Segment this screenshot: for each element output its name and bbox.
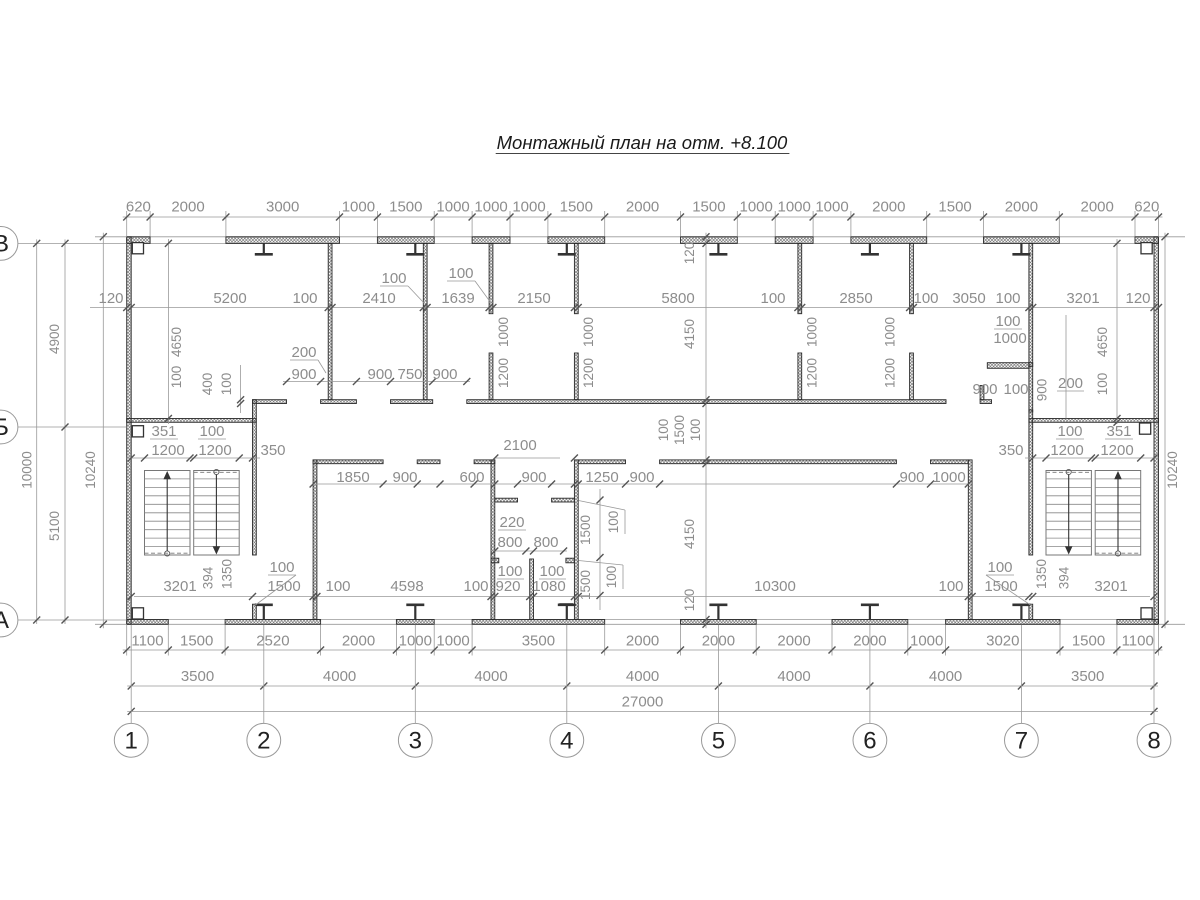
svg-text:3201: 3201 (163, 578, 196, 595)
svg-text:4598: 4598 (390, 578, 423, 595)
svg-text:1100: 1100 (131, 633, 163, 650)
svg-text:1200: 1200 (1050, 442, 1083, 459)
svg-text:394: 394 (201, 566, 216, 589)
svg-text:900: 900 (291, 366, 316, 383)
svg-text:120: 120 (98, 290, 123, 307)
svg-text:900: 900 (432, 366, 457, 383)
svg-text:800: 800 (533, 534, 558, 551)
svg-text:4000: 4000 (474, 668, 507, 685)
svg-text:6: 6 (863, 728, 876, 755)
svg-text:100: 100 (913, 290, 938, 307)
svg-text:4000: 4000 (626, 668, 659, 685)
svg-text:100: 100 (995, 290, 1020, 307)
svg-text:100: 100 (269, 559, 294, 576)
svg-text:1000: 1000 (581, 317, 596, 347)
svg-text:1080: 1080 (532, 578, 565, 595)
svg-text:1: 1 (125, 728, 138, 755)
svg-text:5: 5 (712, 728, 725, 755)
svg-text:1200: 1200 (883, 358, 898, 388)
svg-text:351: 351 (151, 423, 176, 440)
svg-text:4150: 4150 (682, 519, 697, 549)
svg-text:1250: 1250 (585, 469, 618, 486)
svg-text:1000: 1000 (883, 317, 898, 347)
svg-text:1200: 1200 (1100, 442, 1133, 459)
svg-text:750: 750 (397, 366, 422, 383)
svg-text:1000: 1000 (910, 633, 943, 650)
svg-text:5800: 5800 (661, 290, 694, 307)
svg-text:350: 350 (260, 442, 285, 459)
svg-text:100: 100 (463, 578, 488, 595)
svg-text:920: 920 (495, 578, 520, 595)
svg-text:2: 2 (257, 728, 270, 755)
svg-text:400: 400 (200, 373, 215, 396)
svg-text:1500: 1500 (578, 570, 593, 600)
svg-text:1000: 1000 (436, 199, 469, 216)
svg-text:2850: 2850 (839, 290, 872, 307)
svg-text:4900: 4900 (47, 324, 62, 354)
svg-text:2000: 2000 (777, 633, 810, 650)
svg-text:2520: 2520 (256, 633, 289, 650)
svg-text:Монтажный план на отм. +8.100: Монтажный план на отм. +8.100 (497, 132, 788, 153)
svg-text:1200: 1200 (496, 358, 511, 388)
svg-text:4650: 4650 (1095, 327, 1110, 357)
svg-text:100: 100 (938, 578, 963, 595)
svg-text:3050: 3050 (952, 290, 985, 307)
svg-text:1500: 1500 (389, 199, 422, 216)
svg-text:3500: 3500 (1071, 668, 1104, 685)
svg-text:10240: 10240 (1165, 451, 1180, 489)
svg-text:1000: 1000 (474, 199, 507, 216)
svg-text:2000: 2000 (1005, 199, 1038, 216)
svg-text:600: 600 (459, 469, 484, 486)
svg-text:900: 900 (629, 469, 654, 486)
svg-text:200: 200 (291, 344, 316, 361)
svg-text:1000: 1000 (815, 199, 848, 216)
svg-text:Б: Б (0, 414, 9, 441)
svg-text:100: 100 (292, 290, 317, 307)
svg-text:В: В (0, 230, 9, 257)
svg-text:100: 100 (539, 563, 564, 580)
svg-text:1000: 1000 (496, 317, 511, 347)
svg-text:А: А (0, 607, 9, 634)
svg-text:100: 100 (448, 265, 473, 282)
svg-text:1200: 1200 (805, 358, 820, 388)
svg-text:100: 100 (604, 566, 619, 589)
svg-text:800: 800 (497, 534, 522, 551)
svg-text:10000: 10000 (19, 451, 34, 489)
svg-text:100: 100 (169, 366, 184, 389)
svg-text:100: 100 (381, 270, 406, 287)
svg-text:2000: 2000 (626, 633, 659, 650)
svg-text:1000: 1000 (512, 199, 545, 216)
svg-text:900: 900 (899, 469, 924, 486)
svg-text:900: 900 (521, 469, 546, 486)
svg-text:120: 120 (1125, 290, 1150, 307)
svg-text:27000: 27000 (622, 694, 664, 711)
svg-text:100: 100 (1057, 423, 1082, 440)
svg-text:4150: 4150 (682, 319, 697, 349)
svg-text:2000: 2000 (171, 199, 204, 216)
svg-text:100: 100 (1003, 381, 1028, 398)
svg-text:3201: 3201 (1066, 290, 1099, 307)
svg-text:3000: 3000 (266, 199, 299, 216)
svg-text:620: 620 (1134, 199, 1159, 216)
svg-text:1500: 1500 (984, 578, 1017, 595)
svg-text:100: 100 (199, 423, 224, 440)
svg-text:1500: 1500 (692, 199, 725, 216)
svg-text:620: 620 (126, 199, 151, 216)
svg-text:4650: 4650 (169, 327, 184, 357)
svg-text:5200: 5200 (213, 290, 246, 307)
svg-text:100: 100 (656, 419, 671, 442)
svg-text:1639: 1639 (441, 290, 474, 307)
svg-text:4: 4 (560, 728, 573, 755)
svg-text:10300: 10300 (754, 578, 796, 595)
svg-text:394: 394 (1057, 566, 1072, 589)
svg-text:100: 100 (219, 373, 234, 396)
svg-text:4000: 4000 (323, 668, 356, 685)
svg-text:1350: 1350 (1034, 559, 1049, 589)
svg-text:100: 100 (497, 563, 522, 580)
svg-text:100: 100 (987, 559, 1012, 576)
svg-text:1500: 1500 (1072, 633, 1105, 650)
svg-text:5100: 5100 (47, 511, 62, 541)
svg-text:4000: 4000 (777, 668, 810, 685)
svg-text:900: 900 (367, 366, 392, 383)
svg-text:1000: 1000 (740, 199, 773, 216)
svg-text:1200: 1200 (581, 358, 596, 388)
svg-text:3500: 3500 (522, 633, 555, 650)
svg-text:1000: 1000 (932, 469, 965, 486)
svg-text:2150: 2150 (517, 290, 550, 307)
svg-text:1500: 1500 (560, 199, 593, 216)
svg-text:2000: 2000 (1081, 199, 1114, 216)
svg-text:350: 350 (998, 442, 1023, 459)
svg-text:100: 100 (995, 313, 1020, 330)
svg-text:100: 100 (606, 511, 621, 534)
svg-text:900: 900 (972, 381, 997, 398)
svg-text:100: 100 (1095, 373, 1110, 396)
svg-text:351: 351 (1106, 423, 1131, 440)
svg-text:900: 900 (392, 469, 417, 486)
svg-text:1000: 1000 (993, 330, 1026, 347)
svg-text:7: 7 (1015, 728, 1028, 755)
svg-text:100: 100 (325, 578, 350, 595)
svg-text:1000: 1000 (805, 317, 820, 347)
svg-text:1500: 1500 (267, 578, 300, 595)
svg-text:1200: 1200 (198, 442, 231, 459)
svg-text:2100: 2100 (503, 437, 536, 454)
svg-text:100: 100 (760, 290, 785, 307)
svg-text:1850: 1850 (336, 469, 369, 486)
svg-text:8: 8 (1147, 728, 1160, 755)
svg-text:1500: 1500 (672, 415, 687, 445)
svg-text:2410: 2410 (362, 290, 395, 307)
svg-text:3500: 3500 (181, 668, 214, 685)
svg-text:1000: 1000 (436, 633, 469, 650)
svg-text:1000: 1000 (342, 199, 375, 216)
svg-text:1500: 1500 (180, 633, 213, 650)
svg-text:2000: 2000 (342, 633, 375, 650)
svg-text:3: 3 (409, 728, 422, 755)
svg-text:3020: 3020 (986, 633, 1019, 650)
svg-text:120: 120 (682, 589, 697, 612)
svg-text:1200: 1200 (151, 442, 184, 459)
svg-text:3201: 3201 (1094, 578, 1127, 595)
svg-text:10240: 10240 (83, 451, 98, 489)
svg-text:1000: 1000 (778, 199, 811, 216)
svg-text:100: 100 (688, 419, 703, 442)
svg-text:2000: 2000 (872, 199, 905, 216)
svg-text:120: 120 (682, 242, 697, 265)
svg-text:200: 200 (1058, 375, 1083, 392)
svg-text:900: 900 (1035, 379, 1050, 402)
svg-text:2000: 2000 (626, 199, 659, 216)
svg-text:1100: 1100 (1122, 633, 1154, 650)
svg-text:220: 220 (499, 514, 524, 531)
svg-text:1500: 1500 (578, 515, 593, 545)
svg-text:1500: 1500 (938, 199, 971, 216)
svg-text:4000: 4000 (929, 668, 962, 685)
svg-text:1350: 1350 (220, 559, 235, 589)
